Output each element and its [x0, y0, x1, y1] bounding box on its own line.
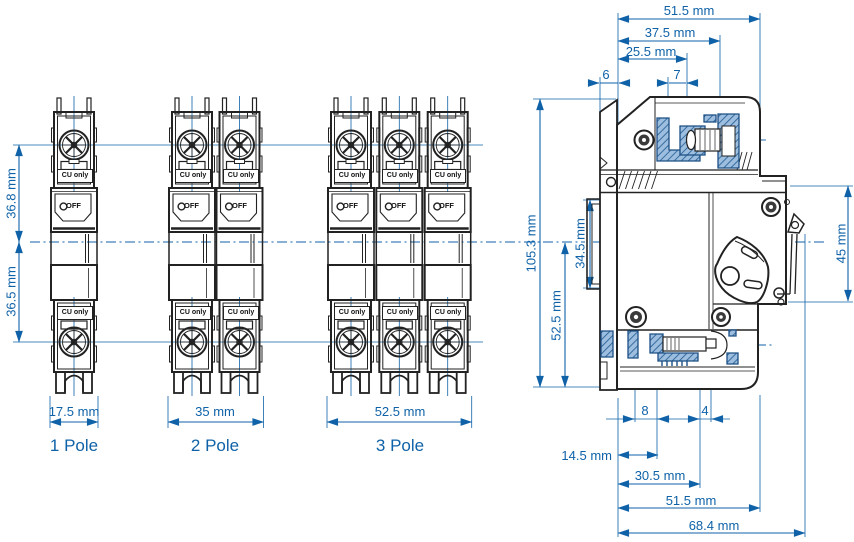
caption-2pole: 2 Pole [165, 436, 265, 456]
caption-1pole: 1 Pole [24, 436, 124, 456]
cu-only-label: CU only [334, 169, 370, 183]
dim-width-1pole: 17.5 mm [34, 404, 114, 419]
dim-side-4: 4 [695, 403, 715, 418]
dim-width-3pole: 52.5 mm [360, 404, 440, 419]
cu-only-label: CU only [57, 306, 93, 320]
cu-only-label: CU only [223, 169, 259, 183]
cu-only-label: CU only [430, 169, 466, 183]
cu-only-label: CU only [175, 306, 211, 320]
front-view-3pole [328, 96, 471, 396]
dim-side-25-5: 25.5 mm [611, 44, 691, 59]
cu-only-label: CU only [57, 169, 93, 183]
front-view-2pole [169, 96, 263, 396]
dim-side-14-5: 14.5 mm [532, 448, 612, 463]
dim-width-2pole: 35 mm [175, 404, 255, 419]
cu-only-label: CU only [223, 306, 259, 320]
side-view [587, 97, 804, 390]
trip-flag [788, 214, 804, 233]
off-label: OFF [343, 201, 358, 210]
front-view-1pole [51, 96, 97, 396]
dim-side-8: 8 [635, 403, 655, 418]
dim-upper-height: 36.8 mm [4, 159, 19, 229]
cu-only-label: CU only [334, 306, 370, 320]
caption-3pole: 3 Pole [350, 436, 450, 456]
dim-side-52-5: 52.5 mm [549, 276, 564, 356]
cu-only-label: CU only [382, 306, 418, 320]
cu-only-label: CU only [382, 169, 418, 183]
off-label: OFF [66, 201, 81, 210]
dim-side-30-5: 30.5 mm [615, 468, 705, 483]
dim-side-51-5-bottom: 51.5 mm [646, 493, 736, 508]
dim-side-45: 45 mm [834, 209, 849, 279]
dim-side-6: 6 [596, 67, 616, 82]
dim-side-37-5: 37.5 mm [630, 25, 710, 40]
dim-side-105-3: 105.3 mm [524, 204, 539, 284]
cu-only-label: CU only [175, 169, 211, 183]
off-label: OFF [232, 201, 247, 210]
breaker-dimension-diagram: 36.8 mm 36.5 mm 17.5 mm 35 mm 52.5 mm 1 … [0, 0, 854, 542]
dim-side-7: 7 [667, 67, 687, 82]
off-label: OFF [184, 201, 199, 210]
din-rail [587, 199, 601, 289]
dim-lower-height: 36.5 mm [4, 257, 19, 327]
cu-only-label: CU only [430, 306, 466, 320]
dim-side-68-4: 68.4 mm [669, 518, 759, 533]
drawing-svg [0, 0, 854, 542]
dim-side-51-5-top: 51.5 mm [649, 3, 729, 18]
off-label: OFF [391, 201, 406, 210]
off-label: OFF [439, 201, 454, 210]
dim-side-34-5: 34.5 mm [573, 204, 588, 284]
